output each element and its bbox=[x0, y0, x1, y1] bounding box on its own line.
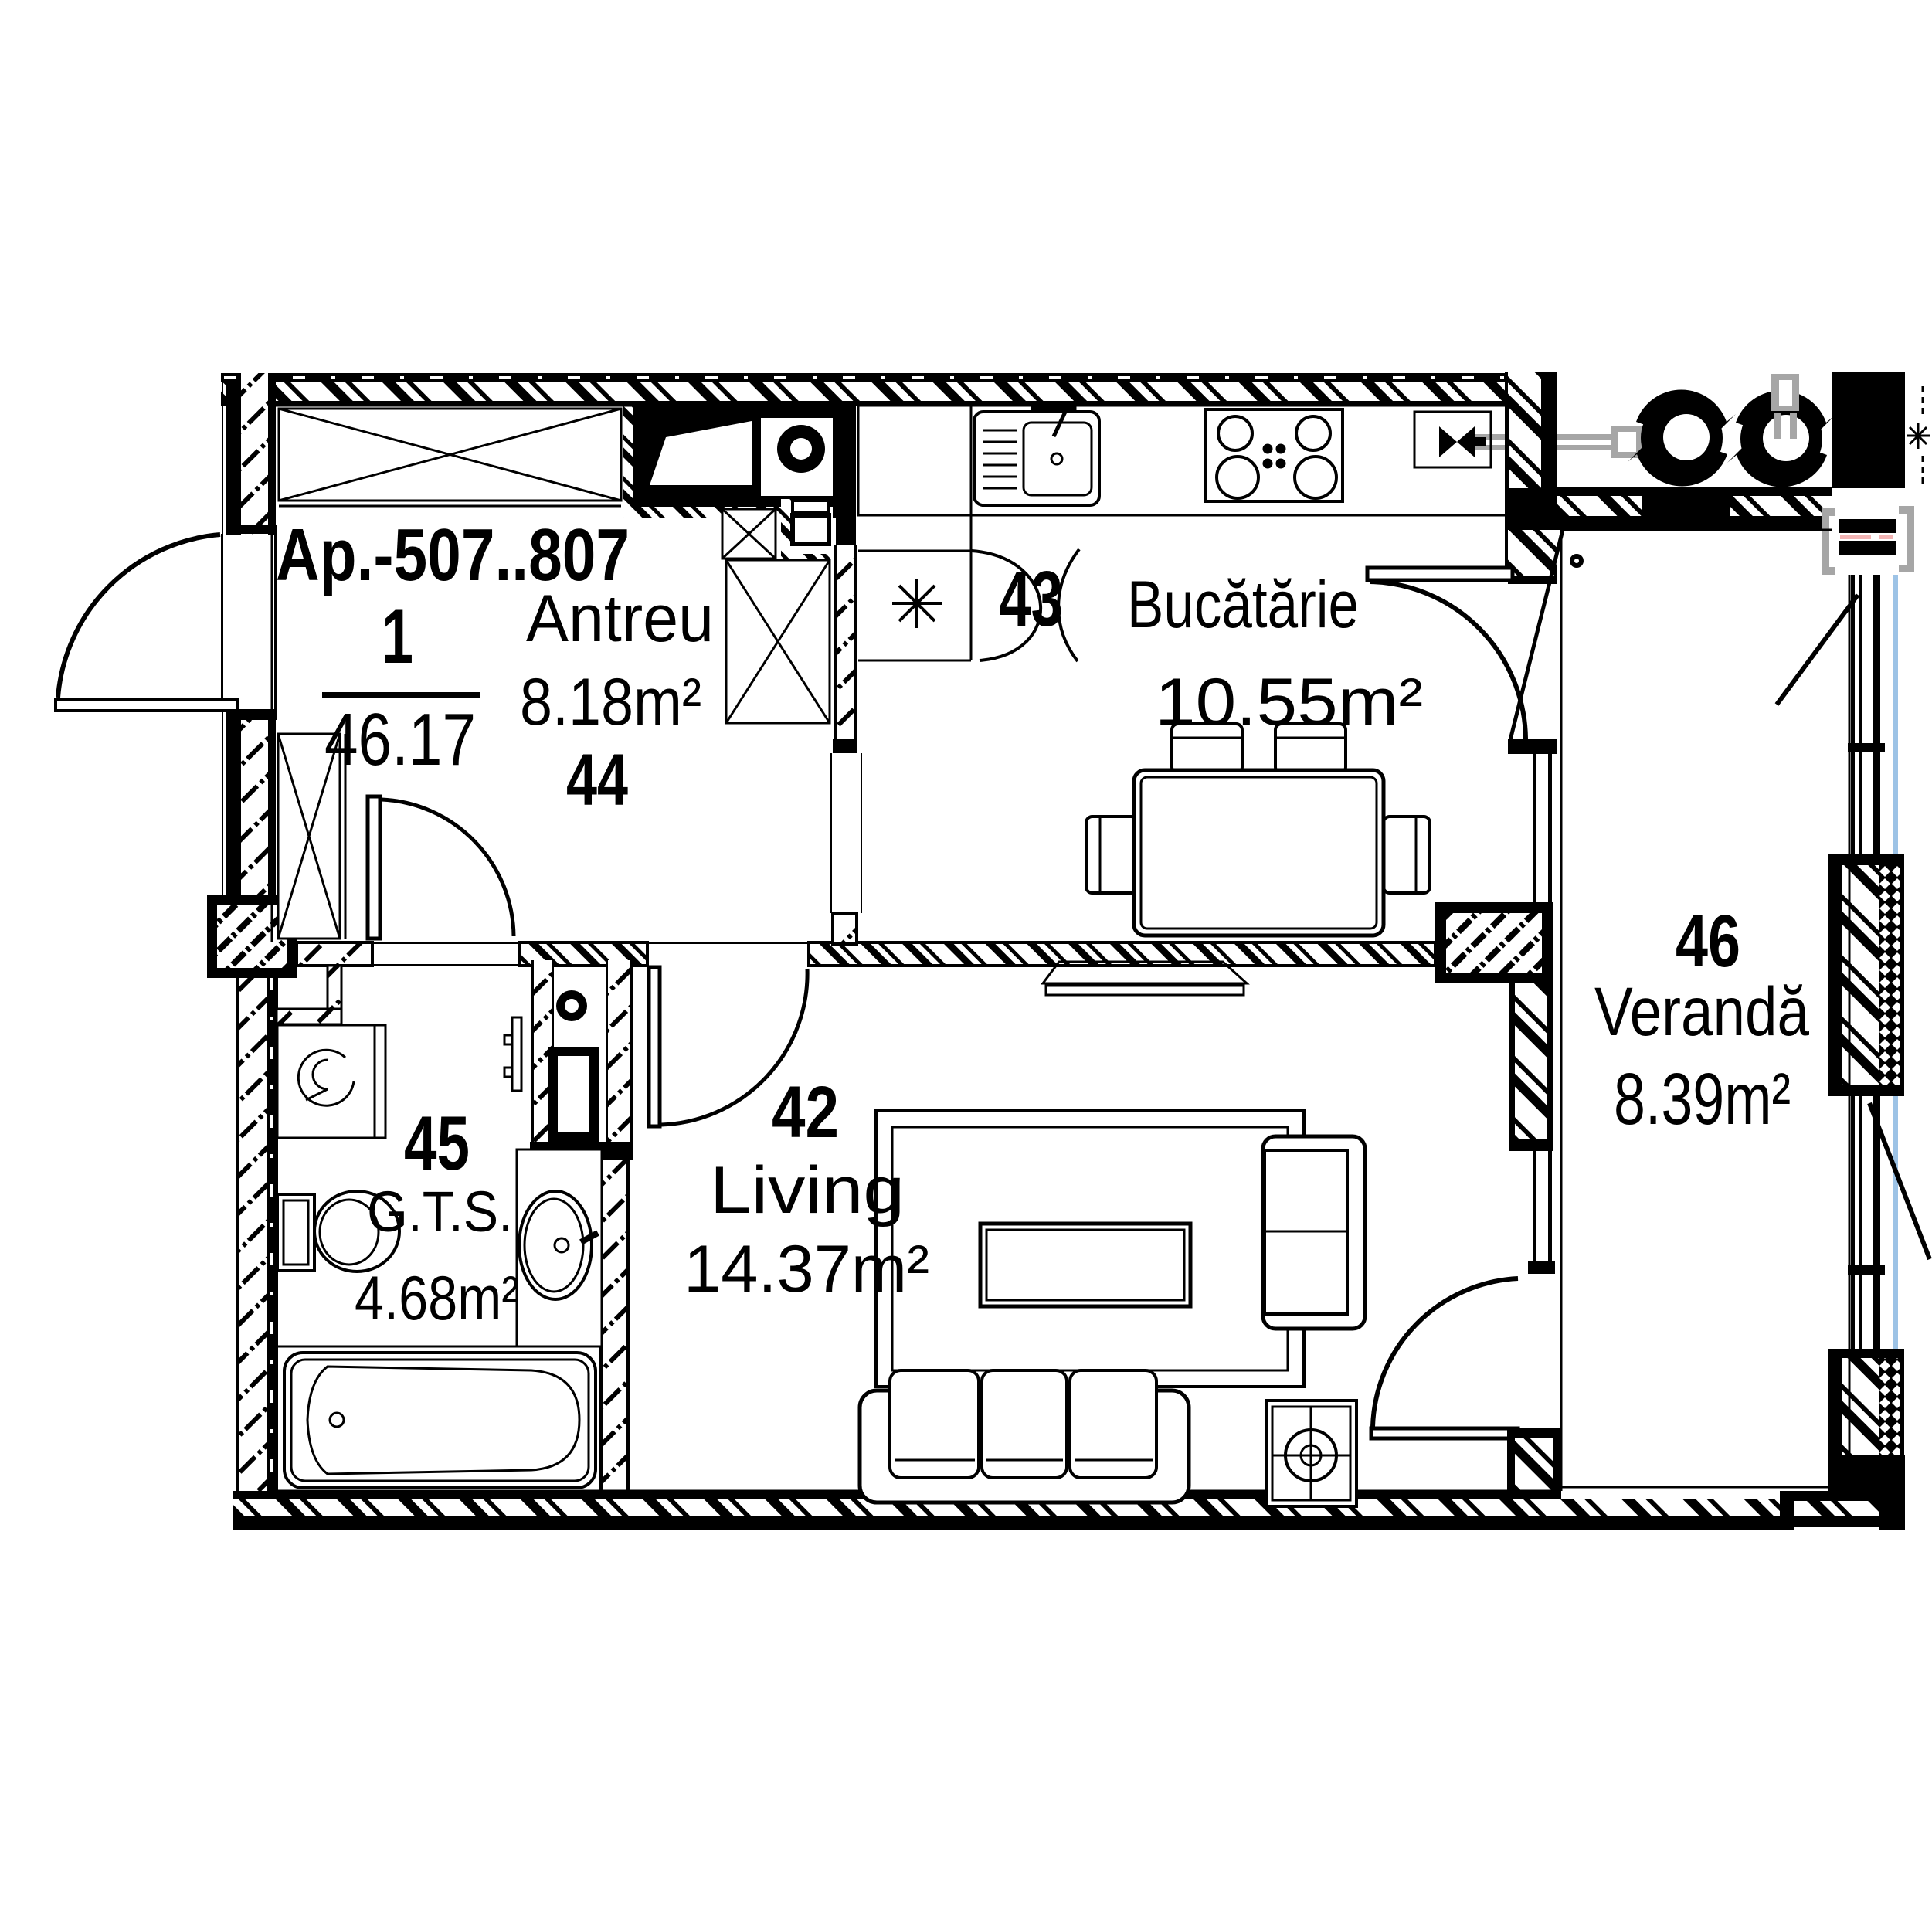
svg-text:G.T.S.: G.T.S. bbox=[367, 1180, 513, 1244]
svg-text:10.55m²: 10.55m² bbox=[1155, 665, 1423, 739]
svg-text:8.39m²: 8.39m² bbox=[1614, 1058, 1791, 1140]
svg-text:1: 1 bbox=[382, 593, 413, 679]
svg-text:8.18m²: 8.18m² bbox=[520, 665, 701, 739]
svg-text:46.17: 46.17 bbox=[324, 698, 476, 781]
svg-text:44: 44 bbox=[566, 739, 628, 821]
svg-text:14.37m²: 14.37m² bbox=[684, 1232, 929, 1306]
svg-text:4.68m²: 4.68m² bbox=[355, 1264, 519, 1333]
svg-text:Verandă: Verandă bbox=[1594, 973, 1809, 1050]
svg-text:46: 46 bbox=[1676, 900, 1740, 983]
svg-text:45: 45 bbox=[404, 1100, 470, 1186]
svg-text:Antreu: Antreu bbox=[526, 582, 714, 656]
svg-text:Bucătărie: Bucătărie bbox=[1127, 568, 1359, 642]
svg-text:43: 43 bbox=[999, 556, 1063, 643]
svg-text:Living: Living bbox=[710, 1153, 905, 1227]
svg-text:42: 42 bbox=[772, 1071, 839, 1153]
